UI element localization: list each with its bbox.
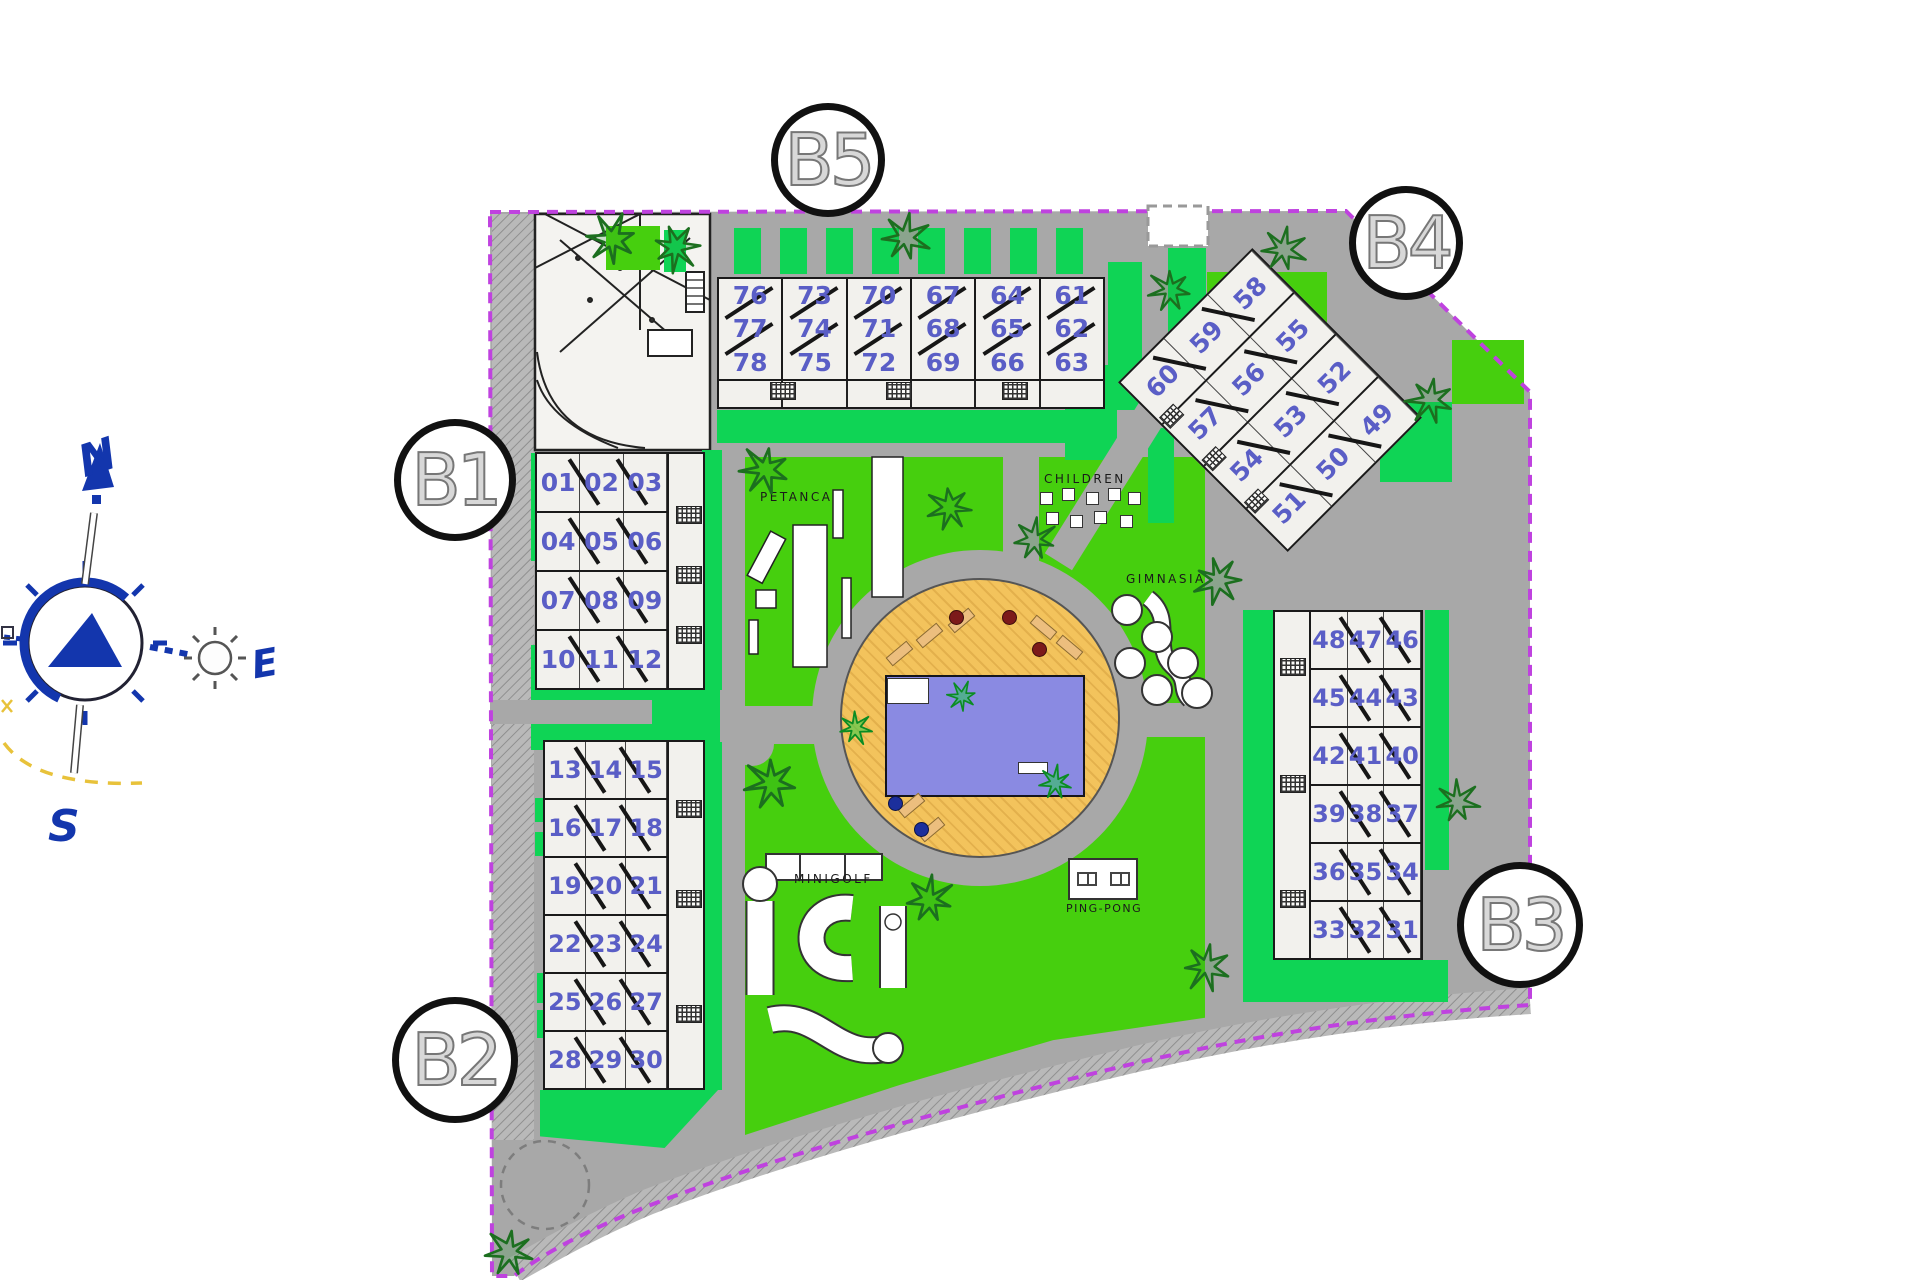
unit-number: 78: [733, 348, 768, 377]
ping-pong-table-icon: [1110, 872, 1130, 886]
unit-number: 59: [1184, 315, 1229, 360]
unit-cell: 43: [1384, 670, 1421, 726]
stair-hatch: [676, 1005, 702, 1023]
terrace-cell: [1041, 381, 1103, 407]
minigolf-label: MINIGOLF: [794, 872, 873, 886]
unit-row: 454443: [1311, 670, 1421, 728]
stair-hatch: [886, 382, 912, 400]
playground-square: [1120, 515, 1133, 528]
unit-number: 19: [548, 872, 581, 900]
block-marker-b1-label: B1: [411, 444, 498, 516]
unit-number: 69: [926, 348, 961, 377]
block-marker-b2-label: B2: [411, 1024, 498, 1096]
compass-east-label: E: [248, 640, 281, 688]
parasol: [949, 610, 964, 625]
playground-square: [1094, 511, 1107, 524]
parasol: [888, 796, 903, 811]
unit-number: 47: [1349, 626, 1382, 654]
stair-hatch: [1280, 658, 1306, 676]
unit-number: 27: [629, 988, 662, 1016]
unit-number: 70: [861, 281, 896, 310]
unit-number: 17: [589, 814, 622, 842]
playground-square: [1040, 492, 1053, 505]
site-plan: 767778737475707172676869646566616263 010…: [0, 0, 1920, 1280]
compass-needle: [48, 613, 122, 667]
unit-number: 39: [1312, 800, 1345, 828]
palm-tree-icon: [876, 209, 934, 267]
unit-row: 161718: [545, 800, 667, 858]
parasol: [1032, 642, 1047, 657]
block-marker-b3-label: B3: [1476, 889, 1563, 961]
unit-number: 64: [990, 281, 1025, 310]
block-marker-b2: B2: [392, 997, 518, 1123]
unit-row: 393837: [1311, 786, 1421, 844]
b1-units: 010203040506070809101112: [537, 454, 667, 688]
unit-number: 77: [733, 314, 768, 343]
unit-cell: 31: [1384, 902, 1421, 958]
garden-strip: [780, 228, 807, 274]
compass-rose: N E S: [0, 395, 300, 865]
unit-row: 484746: [1311, 612, 1421, 670]
pool-steps: [887, 678, 929, 704]
garden-strip: [1010, 228, 1037, 274]
parasol: [1002, 610, 1017, 625]
compass-north-arrow: [82, 443, 114, 491]
b5-units: 767778737475707172676869646566616263: [719, 279, 1103, 379]
unit-number: 22: [548, 930, 581, 958]
unit-number: 11: [584, 645, 619, 674]
unit-column: 646566: [976, 279, 1040, 379]
unit-number: 31: [1385, 916, 1418, 944]
unit-number: 56: [1226, 357, 1271, 402]
garden-strip: [1056, 228, 1083, 274]
palm-tree-icon: [1402, 372, 1458, 428]
palm-tree-icon: [1178, 939, 1234, 995]
b2-units: 131415161718192021222324252627282930: [545, 742, 667, 1088]
gym-station: [1141, 674, 1173, 706]
terrace-cell: [912, 381, 976, 407]
unit-number: 28: [548, 1046, 581, 1074]
unit-row: 333231: [1311, 902, 1421, 958]
unit-cell: 46: [1384, 612, 1421, 668]
unit-number: 05: [584, 527, 619, 556]
unit-number: 58: [1228, 271, 1273, 316]
unit-number: 41: [1349, 742, 1382, 770]
stair-hatch: [1280, 775, 1306, 793]
stair-hatch: [1002, 382, 1028, 400]
unit-number: 01: [541, 468, 576, 497]
unit-cell: 40: [1384, 728, 1421, 784]
ping-pong-area: [1068, 858, 1138, 900]
unit-column: 676869: [912, 279, 976, 379]
unit-number: 35: [1349, 858, 1382, 886]
unit-number: 21: [629, 872, 662, 900]
palm-tree-icon: [740, 752, 802, 814]
future-roundabout: [501, 1141, 589, 1229]
stair-hatch: [1280, 890, 1306, 908]
unit-number: 73: [797, 281, 832, 310]
unit-number: 04: [541, 527, 576, 556]
playground-square: [1128, 492, 1141, 505]
stair-hatch: [676, 506, 702, 524]
garden-strip: [702, 450, 722, 690]
unit-number: 50: [1310, 441, 1355, 486]
unit-number: 34: [1385, 858, 1418, 886]
unit-number: 75: [797, 348, 832, 377]
ping-pong-label: PING-PONG: [1066, 902, 1142, 915]
unit-number: 38: [1349, 800, 1382, 828]
b2-stair-column: [667, 742, 703, 1088]
sun-path-arc: [4, 743, 142, 783]
unit-row: 363534: [1311, 844, 1421, 902]
gym-station: [1111, 594, 1143, 626]
stair-hatch: [676, 800, 702, 818]
unit-row: 070809: [537, 572, 667, 631]
unit-row: 101112: [537, 631, 667, 688]
unit-cell: 37: [1384, 786, 1421, 842]
garden-strip: [964, 228, 991, 274]
unit-number: 61: [1054, 281, 1089, 310]
stair-hatch: [770, 382, 796, 400]
garden-strip: [702, 742, 722, 1090]
path-between-b1-b2: [490, 700, 652, 724]
unit-column: 767778: [719, 279, 783, 379]
unit-number: 14: [589, 756, 622, 784]
garden-strip: [540, 1090, 718, 1148]
palm-tree-icon: [1256, 223, 1310, 277]
unit-number: 07: [541, 586, 576, 615]
unit-number: 74: [797, 314, 832, 343]
unit-number: 29: [589, 1046, 622, 1074]
unit-number: 43: [1385, 684, 1418, 712]
garden-strip: [717, 410, 1105, 443]
unit-number: 48: [1312, 626, 1345, 654]
unit-row: 252627: [545, 974, 667, 1032]
unit-number: 33: [1312, 916, 1345, 944]
palm-tree-icon: [1144, 264, 1196, 316]
gym-station: [1181, 677, 1213, 709]
unit-number: 10: [541, 645, 576, 674]
unit-number: 49: [1354, 397, 1399, 442]
children-label: CHILDREN: [1044, 472, 1126, 486]
unit-number: 67: [926, 281, 961, 310]
unit-number: 36: [1312, 858, 1345, 886]
unit-number: 08: [584, 586, 619, 615]
unit-number: 62: [1054, 314, 1089, 343]
unit-number: 66: [990, 348, 1025, 377]
unit-number: 26: [589, 988, 622, 1016]
compass-south-label: S: [48, 801, 80, 852]
palm-tree-icon: [1036, 763, 1076, 803]
unit-number: 03: [627, 468, 662, 497]
unit-number: 71: [861, 314, 896, 343]
unit-number: 65: [990, 314, 1025, 343]
unit-number: 76: [733, 281, 768, 310]
unit-row: 010203: [537, 454, 667, 513]
gym-station: [1141, 621, 1173, 653]
palm-tree-icon: [901, 871, 959, 929]
unit-column: 737475: [783, 279, 847, 379]
unit-column: 616263: [1041, 279, 1103, 379]
gym-station: [1167, 647, 1199, 679]
unit-row: 192021: [545, 858, 667, 916]
unit-number: 53: [1268, 399, 1313, 444]
unit-number: 40: [1385, 742, 1418, 770]
palm-tree-icon: [835, 708, 875, 748]
unit-column: 707172: [848, 279, 912, 379]
building-b2: 131415161718192021222324252627282930: [543, 740, 705, 1090]
garden-strip: [1425, 610, 1449, 870]
unit-number: 16: [548, 814, 581, 842]
palm-tree-icon: [648, 220, 704, 276]
unit-number: 54: [1224, 443, 1269, 488]
stair-hatch: [676, 626, 702, 644]
ping-pong-table-icon: [1077, 872, 1097, 886]
palm-tree-icon: [944, 679, 980, 715]
garden-strip: [1243, 610, 1273, 960]
palm-tree-icon: [1009, 514, 1061, 566]
unit-number: 23: [589, 930, 622, 958]
block-marker-b5-label: B5: [784, 124, 871, 196]
block-marker-b4-label: B4: [1362, 207, 1449, 279]
unit-number: 42: [1312, 742, 1345, 770]
block-marker-b1: B1: [394, 419, 516, 541]
perimeter-walk-hatch: [492, 214, 534, 1140]
unit-number: 18: [629, 814, 662, 842]
stair-hatch: [676, 566, 702, 584]
playground-square: [1062, 488, 1075, 501]
unit-number: 37: [1385, 800, 1418, 828]
palm-tree-icon: [481, 1223, 539, 1280]
unit-number: 72: [861, 348, 896, 377]
gym-station: [1114, 647, 1146, 679]
playground-square: [1108, 488, 1121, 501]
palm-tree-icon: [1431, 776, 1483, 828]
palm-tree-icon: [735, 440, 795, 500]
unit-number: 13: [548, 756, 581, 784]
compass-north-label: N: [72, 428, 123, 488]
palm-tree-icon: [1189, 551, 1247, 609]
block-marker-b3: B3: [1457, 862, 1583, 988]
unit-number: 60: [1140, 359, 1185, 404]
building-b5: 767778737475707172676869646566616263: [717, 277, 1105, 381]
unit-number: 44: [1349, 684, 1382, 712]
unit-row: 424140: [1311, 728, 1421, 786]
playground-square: [1070, 515, 1083, 528]
unit-cell: 34: [1384, 844, 1421, 900]
unit-number: 25: [548, 988, 581, 1016]
unit-number: 45: [1312, 684, 1345, 712]
unit-number: 02: [584, 468, 619, 497]
unit-row: 131415: [545, 742, 667, 800]
unit-number: 52: [1312, 355, 1357, 400]
garden-strip: [1243, 960, 1448, 1002]
unit-number: 63: [1054, 348, 1089, 377]
unit-row: 222324: [545, 916, 667, 974]
unit-number: 46: [1385, 626, 1418, 654]
palm-tree-icon: [581, 209, 643, 271]
entrance-gate: [1148, 206, 1208, 246]
lawn-patch: [1452, 340, 1524, 404]
unit-number: 24: [629, 930, 662, 958]
unit-row: 040506: [537, 513, 667, 572]
unit-number: 06: [627, 527, 662, 556]
unit-number: 55: [1270, 313, 1315, 358]
unit-number: 15: [629, 756, 662, 784]
unit-number: 32: [1349, 916, 1382, 944]
unit-number: 20: [589, 872, 622, 900]
unit-row: 282930: [545, 1032, 667, 1088]
playground-square: [1086, 492, 1099, 505]
unit-number: 09: [627, 586, 662, 615]
sun-icon: [199, 642, 231, 674]
block-marker-b5: B5: [771, 103, 885, 217]
unit-number: 68: [926, 314, 961, 343]
unit-number: 30: [629, 1046, 662, 1074]
garden-strip: [734, 228, 761, 274]
unit-number: 12: [627, 645, 662, 674]
block-marker-b4: B4: [1349, 186, 1463, 300]
garden-strip: [826, 228, 853, 274]
palm-tree-icon: [923, 481, 977, 535]
parasol: [914, 822, 929, 837]
stair-hatch: [676, 890, 702, 908]
b3-units: 484746454443424140393837363534333231: [1311, 612, 1421, 958]
